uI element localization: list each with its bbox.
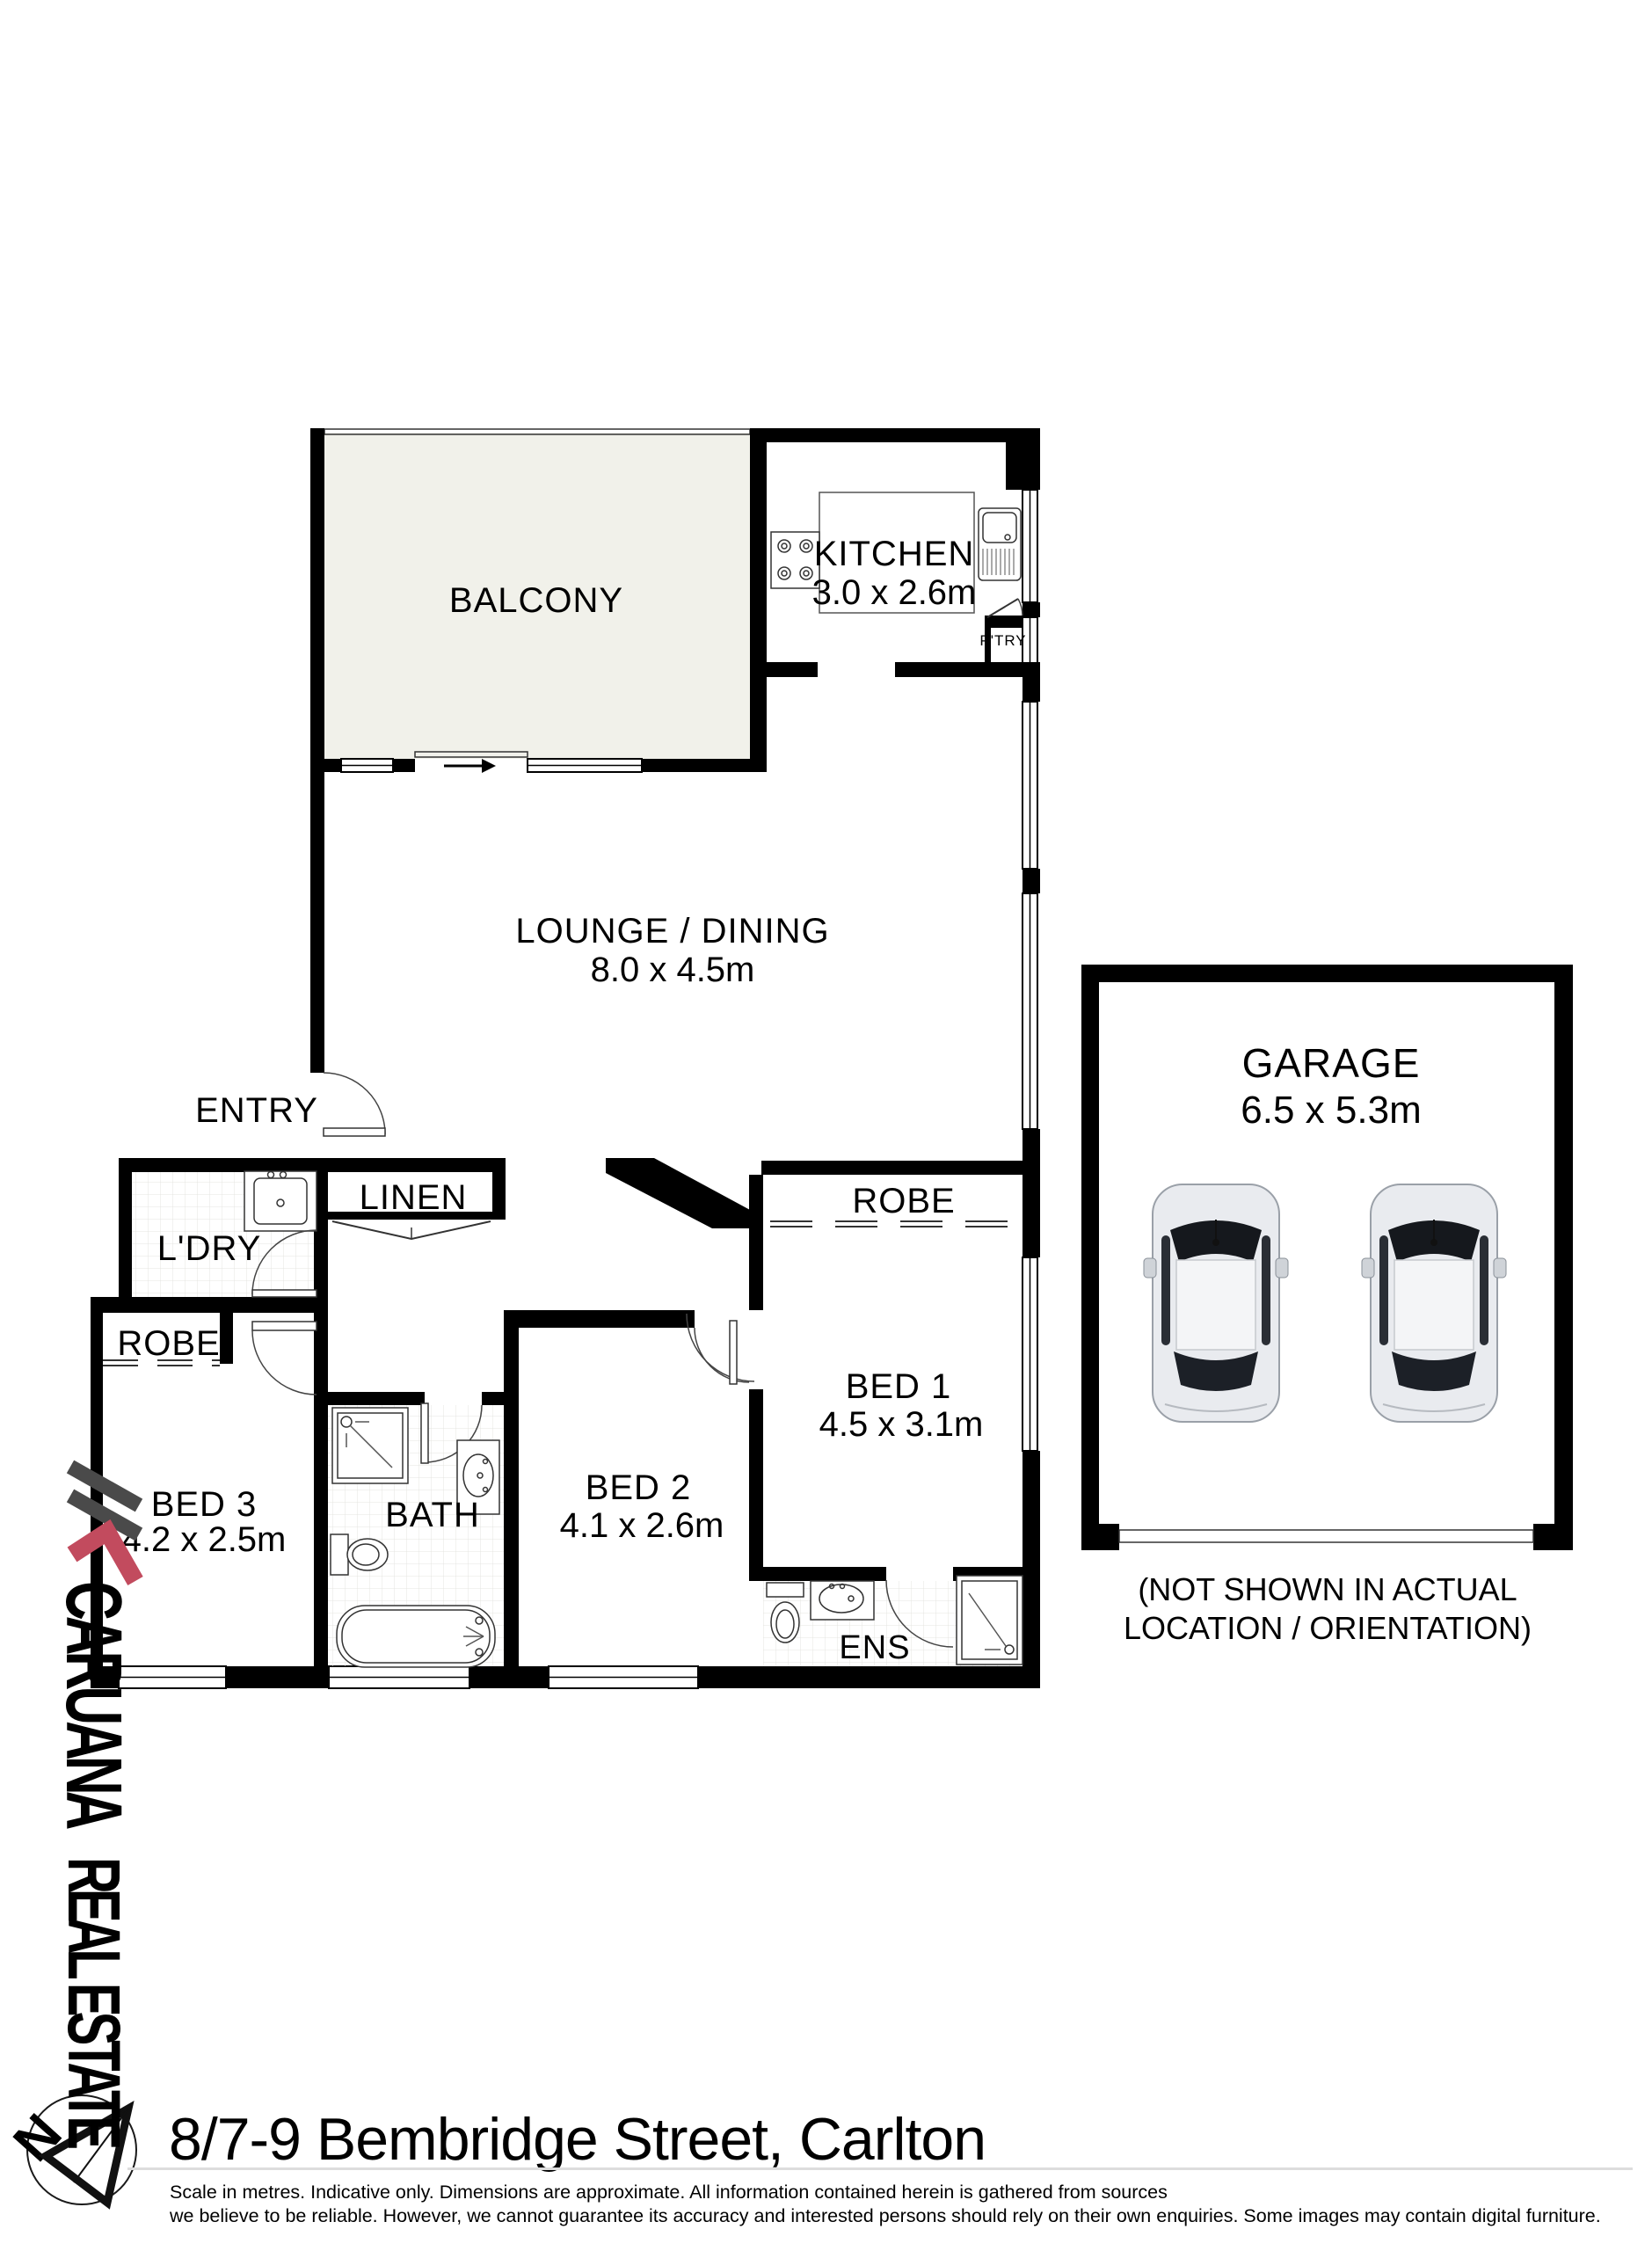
basin-icon <box>811 1581 874 1620</box>
shower-icon <box>957 1576 1022 1665</box>
address-title: 8/7-9 Bembridge Street, Carlton <box>169 2106 986 2173</box>
shower-icon <box>332 1408 408 1483</box>
robe-bed1-label: ROBE <box>852 1182 955 1220</box>
bed1-label: BED 1 <box>846 1367 952 1406</box>
kitchen-dims: 3.0 x 2.6m <box>812 573 977 612</box>
pantry: P'TRY <box>979 599 1026 662</box>
garage-dims: 6.5 x 5.3m <box>1241 1089 1421 1132</box>
entry: ENTRY <box>195 1073 385 1136</box>
car-top-view <box>1144 1184 1288 1422</box>
laundry-label: L'DRY <box>157 1229 262 1268</box>
chamfer-wall <box>606 1158 761 1228</box>
window <box>1022 893 1037 1129</box>
laundry-sink-icon <box>244 1171 317 1231</box>
robe-hall-label: ROBE <box>117 1324 220 1363</box>
room-ens: ENS <box>763 1576 1022 1666</box>
hall-door <box>252 1322 317 1395</box>
brand-name-vertical: CARUANA <box>49 1581 137 1829</box>
bed1-door-arc <box>687 1314 754 1381</box>
window <box>1022 490 1037 602</box>
hall-door-leaf <box>252 1322 317 1330</box>
entry-label: ENTRY <box>195 1091 318 1130</box>
robe-hall: ROBE <box>103 1313 233 1366</box>
bed3-label: BED 3 <box>151 1485 258 1524</box>
bed2-dims: 4.1 x 2.6m <box>560 1506 724 1545</box>
garage-label: GARAGE <box>1242 1040 1421 1086</box>
lounge-dims: 8.0 x 4.5m <box>591 951 755 989</box>
linen-closet: LINEN <box>328 1178 506 1239</box>
window <box>1022 702 1037 869</box>
window <box>1022 1257 1037 1451</box>
disclaimer-line1: Scale in metres. Indicative only. Dimens… <box>170 2182 1168 2203</box>
room-bath: BATH <box>328 1403 504 1667</box>
window <box>341 759 393 772</box>
lounge-label: LOUNGE / DINING <box>515 912 829 951</box>
bed1-dims: 4.5 x 3.1m <box>819 1405 984 1444</box>
linen-label: LINEN <box>360 1178 468 1217</box>
garage-door <box>1119 1530 1533 1542</box>
brand-watermark: N CARUANA REAL ESTATE <box>2 1467 139 2204</box>
room-bed3: BED 3 4.2 x 2.5m <box>122 1485 287 1559</box>
kitchen-label: KITCHEN <box>814 535 975 573</box>
hall-door-arc <box>252 1330 317 1395</box>
bed1-door-leaf <box>730 1321 737 1384</box>
room-laundry: L'DRY <box>132 1171 317 1297</box>
garage-note-line2: LOCATION / ORIENTATION) <box>1124 1610 1532 1646</box>
disclaimer-line2: we believe to be reliable. However, we c… <box>169 2205 1601 2226</box>
brand-logo-mark <box>70 1467 139 1581</box>
ens-label: ENS <box>839 1629 910 1666</box>
garage-note-line1: (NOT SHOWN IN ACTUAL <box>1138 1571 1517 1607</box>
room-balcony: BALCONY <box>310 428 767 773</box>
kitchen-sink-icon <box>979 508 1021 580</box>
direction-arrow-icon <box>444 759 496 773</box>
bed2-door-arc <box>695 1328 749 1382</box>
footer-divider <box>127 2167 1633 2170</box>
window <box>329 1666 469 1688</box>
room-kitchen: KITCHEN 3.0 x 2.6m P'TRY <box>750 428 1040 677</box>
laundry-door-leaf <box>252 1290 317 1297</box>
bed3-dims: 4.2 x 2.5m <box>122 1520 287 1559</box>
footer: 8/7-9 Bembridge Street, Carlton Scale in… <box>127 2106 1633 2226</box>
brand-suffix-vertical: REAL ESTATE <box>52 1857 134 2148</box>
balcony-label: BALCONY <box>449 581 623 620</box>
car-top-view <box>1362 1184 1506 1422</box>
pantry-door <box>987 599 1018 617</box>
floor-plan: BALCONY <box>91 428 1040 1688</box>
bath-label: BATH <box>385 1496 480 1534</box>
bath-door-leaf <box>421 1403 428 1463</box>
garage: GARAGE 6.5 x 5.3m (NOT SHOWN IN ACTUAL L… <box>1081 965 1573 1646</box>
bed2-label: BED 2 <box>586 1468 692 1507</box>
window <box>528 759 642 772</box>
pantry-label: P'TRY <box>979 632 1026 649</box>
entry-door-arc <box>324 1073 385 1134</box>
entry-door-leaf <box>324 1128 385 1136</box>
window <box>549 1666 698 1688</box>
room-bed2: BED 2 4.1 x 2.6m <box>560 1328 749 1545</box>
bathtub-icon <box>337 1606 495 1667</box>
